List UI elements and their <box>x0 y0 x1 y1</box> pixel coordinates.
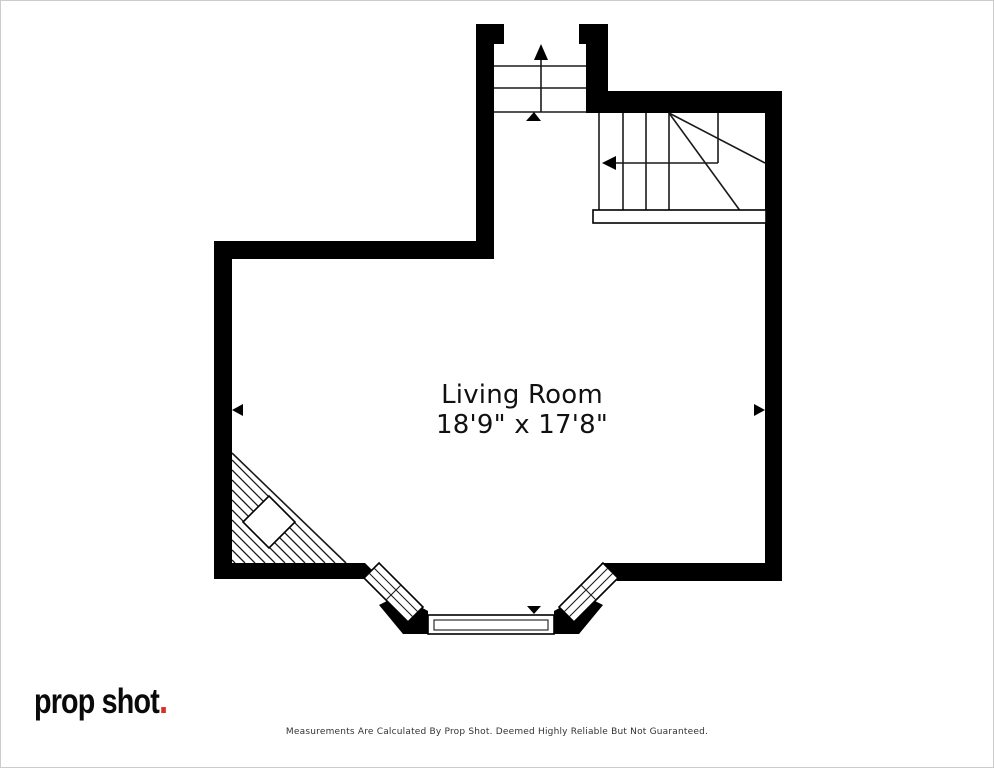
stairwell-left-jamb <box>494 24 504 44</box>
logo-dot: . <box>159 678 168 722</box>
stair-left-arrow-icon <box>602 156 616 170</box>
fireplace-firebox <box>243 496 295 548</box>
stairwell-left-wall <box>476 24 494 259</box>
bottom-left-wall <box>214 563 381 579</box>
upper-staircase <box>494 59 586 112</box>
stair-base-marker-icon <box>526 112 541 121</box>
right-wall <box>765 91 782 581</box>
dimension-marker-bottom-icon <box>527 606 541 614</box>
bay-window-front <box>428 615 554 634</box>
winder-tread <box>669 113 765 163</box>
dimension-marker-left-icon <box>232 404 243 416</box>
upper-left-wall <box>214 241 494 259</box>
room-dimensions: 18'9" x 17'8" <box>381 410 663 440</box>
bottom-right-wall <box>601 563 782 581</box>
floorplan-canvas: Living Room 18'9" x 17'8" prop shot. Mea… <box>0 0 994 768</box>
stair-up-arrow-icon <box>534 44 548 60</box>
dimension-marker-right-icon <box>754 404 765 416</box>
logo-text: prop shot <box>34 682 159 721</box>
disclaimer-text: Measurements Are Calculated By Prop Shot… <box>286 727 708 737</box>
room-label: Living Room 18'9" x 17'8" <box>381 380 663 440</box>
corner-fireplace <box>232 453 346 563</box>
left-wall <box>214 241 232 579</box>
main-staircase <box>599 113 765 212</box>
top-wall <box>586 91 782 113</box>
walls <box>214 24 782 634</box>
room-name: Living Room <box>381 380 663 410</box>
stair-landing-edge <box>593 210 766 223</box>
propshot-logo: prop shot. <box>34 683 168 719</box>
